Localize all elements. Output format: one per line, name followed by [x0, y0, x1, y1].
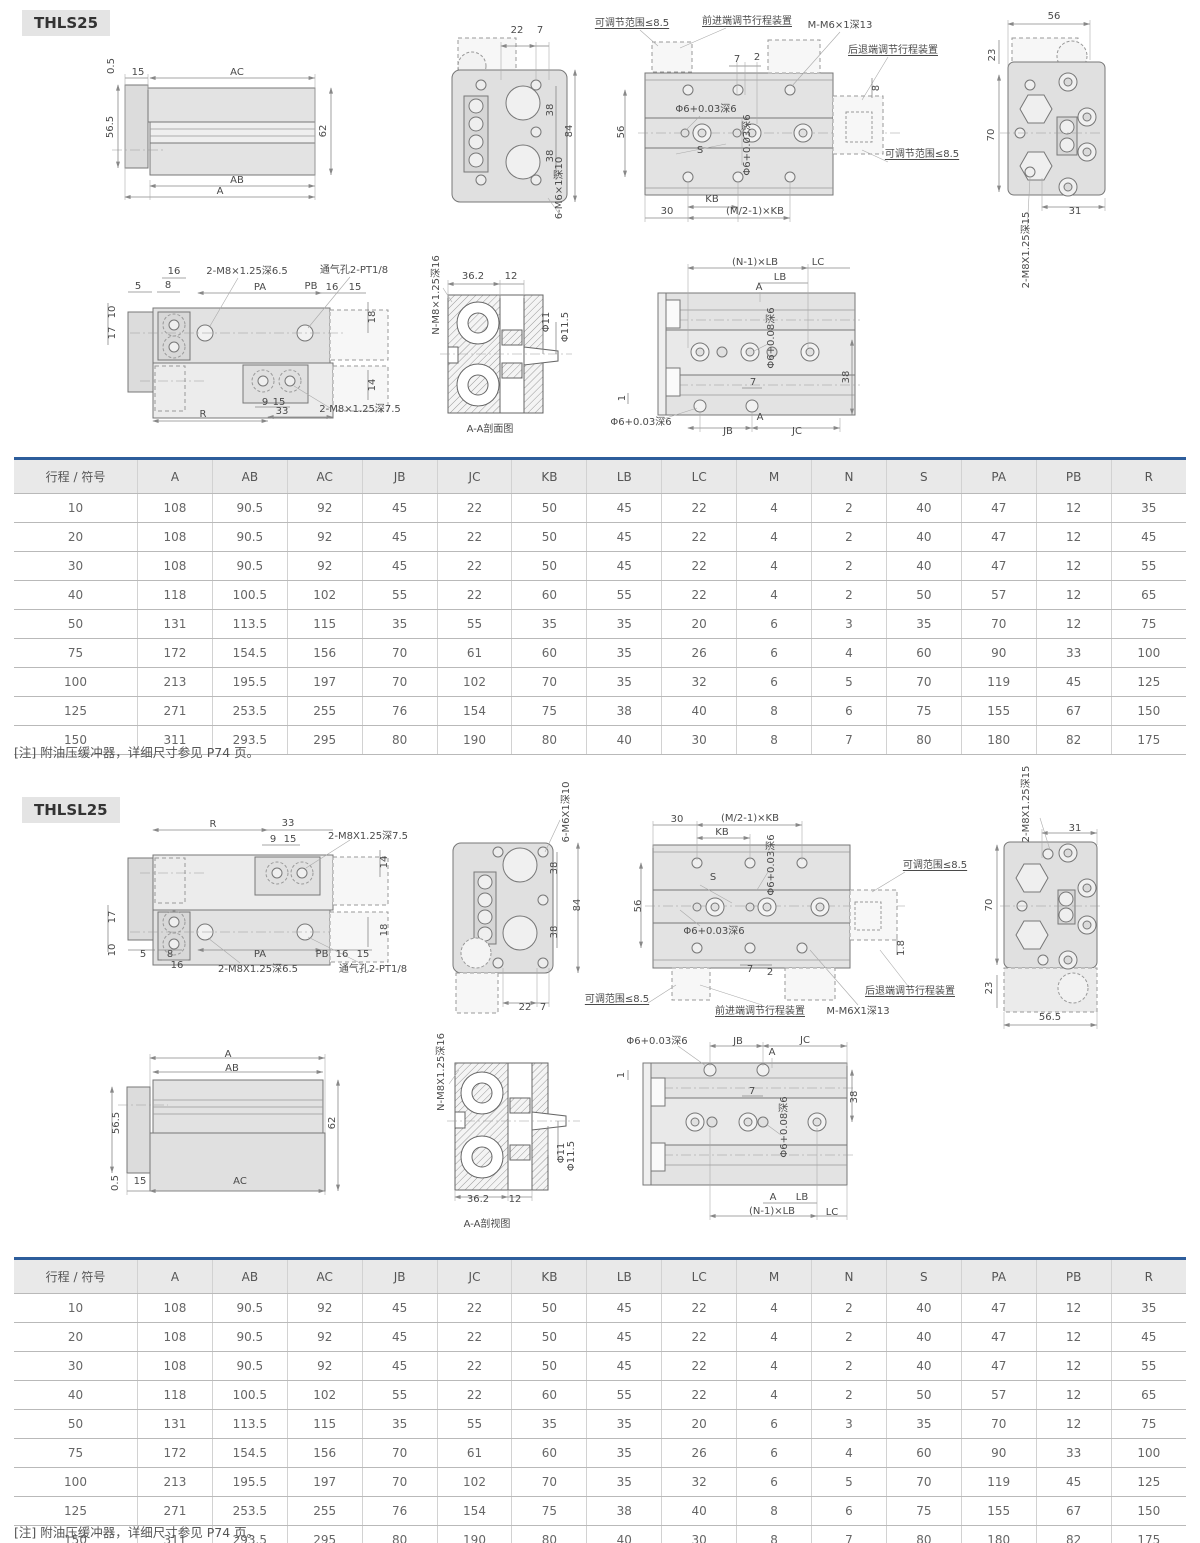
section2-note: [注] 附油压缓冲器，详细尺寸参见 P74 页。	[14, 1522, 259, 1541]
table-cell: 125	[1111, 668, 1186, 697]
table-cell: 76	[362, 1497, 437, 1526]
table-cell: 22	[662, 1294, 737, 1323]
table-cell: 40	[886, 1323, 961, 1352]
table-cell: 45	[362, 1294, 437, 1323]
table-cell: 40	[14, 1381, 138, 1410]
column-header: JC	[437, 1259, 512, 1294]
table-cell: 35	[1111, 494, 1186, 523]
column-header: R	[1111, 459, 1186, 494]
table-cell: 22	[437, 1323, 512, 1352]
table-cell: 45	[587, 1323, 662, 1352]
table-cell: 4	[737, 1381, 812, 1410]
table-cell: 100	[14, 1468, 138, 1497]
table-cell: 100	[14, 668, 138, 697]
column-header: AC	[287, 1259, 362, 1294]
table-cell: 35	[512, 1410, 587, 1439]
table-cell: 70	[362, 1468, 437, 1497]
table-cell: 195.5	[212, 1468, 287, 1497]
table-cell: 35	[512, 610, 587, 639]
column-header: S	[886, 1259, 961, 1294]
table-cell: 197	[287, 668, 362, 697]
table-cell: 45	[362, 552, 437, 581]
table-cell: 61	[437, 1439, 512, 1468]
table-cell: 2	[812, 1381, 887, 1410]
table-cell: 3	[812, 1410, 887, 1439]
table-row: 40118100.510255226055224250571265	[14, 1381, 1186, 1410]
table-cell: 50	[14, 610, 138, 639]
table-cell: 55	[1111, 552, 1186, 581]
table-cell: 90	[961, 1439, 1036, 1468]
table-cell: 30	[662, 726, 737, 755]
table-cell: 8	[737, 726, 812, 755]
table-cell: 92	[287, 552, 362, 581]
table-cell: 175	[1111, 1526, 1186, 1543]
column-header: KB	[512, 1259, 587, 1294]
table-cell: 60	[512, 1381, 587, 1410]
table-cell: 32	[662, 1468, 737, 1497]
table-cell: 75	[14, 1439, 138, 1468]
table-row: 1010890.59245225045224240471235	[14, 1294, 1186, 1323]
table-cell: 102	[287, 1381, 362, 1410]
table-cell: 154.5	[212, 1439, 287, 1468]
table-cell: 50	[14, 1410, 138, 1439]
table-cell: 80	[886, 1526, 961, 1543]
table-cell: 108	[138, 494, 213, 523]
table-row: 100213195.519770102703532657011945125	[14, 668, 1186, 697]
table-cell: 100	[1111, 1439, 1186, 1468]
table-cell: 10	[14, 1294, 138, 1323]
table-cell: 154	[437, 697, 512, 726]
table-cell: 80	[512, 726, 587, 755]
table-cell: 47	[961, 1323, 1036, 1352]
table-cell: 12	[1036, 581, 1111, 610]
table-cell: 6	[812, 1497, 887, 1526]
table-cell: 32	[662, 668, 737, 697]
table-cell: 172	[138, 639, 213, 668]
table-cell: 57	[961, 581, 1036, 610]
table-cell: 8	[737, 1497, 812, 1526]
table-cell: 40	[662, 1497, 737, 1526]
column-header: M	[737, 1259, 812, 1294]
table-cell: 295	[287, 726, 362, 755]
section1-technical-drawing	[0, 0, 1200, 458]
table-cell: 60	[512, 639, 587, 668]
table-cell: 150	[1111, 697, 1186, 726]
table-cell: 26	[662, 1439, 737, 1468]
table-cell: 40	[886, 494, 961, 523]
table-cell: 35	[587, 1439, 662, 1468]
table-cell: 2	[812, 1323, 887, 1352]
table-cell: 70	[886, 1468, 961, 1497]
table-cell: 190	[437, 1526, 512, 1543]
table-cell: 150	[1111, 1497, 1186, 1526]
table-cell: 40	[886, 523, 961, 552]
table-cell: 90.5	[212, 552, 287, 581]
table-cell: 8	[737, 697, 812, 726]
table-cell: 75	[886, 1497, 961, 1526]
table-cell: 172	[138, 1439, 213, 1468]
section2-technical-drawing	[0, 795, 1200, 1260]
table-cell: 22	[437, 523, 512, 552]
table-cell: 3	[812, 610, 887, 639]
table-cell: 213	[138, 1468, 213, 1497]
table-cell: 50	[886, 581, 961, 610]
table-cell: 20	[14, 523, 138, 552]
table-cell: 35	[587, 668, 662, 697]
table-cell: 40	[14, 581, 138, 610]
table-cell: 131	[138, 610, 213, 639]
table-cell: 156	[287, 1439, 362, 1468]
table-cell: 22	[662, 1381, 737, 1410]
table-cell: 253.5	[212, 697, 287, 726]
table-cell: 80	[886, 726, 961, 755]
table-cell: 22	[662, 523, 737, 552]
table-cell: 55	[587, 581, 662, 610]
table-cell: 45	[362, 494, 437, 523]
table-cell: 154.5	[212, 639, 287, 668]
table-cell: 22	[662, 552, 737, 581]
table-cell: 50	[512, 494, 587, 523]
table-cell: 113.5	[212, 610, 287, 639]
table-row: 50131113.511535553535206335701275	[14, 610, 1186, 639]
table-cell: 115	[287, 1410, 362, 1439]
table-cell: 60	[886, 639, 961, 668]
table-row: 3010890.59245225045224240471255	[14, 1352, 1186, 1381]
table-cell: 33	[1036, 1439, 1111, 1468]
table-cell: 70	[961, 1410, 1036, 1439]
table-cell: 40	[886, 1352, 961, 1381]
table-cell: 6	[737, 668, 812, 697]
table-header: 行程 / 符号AABACJBJCKBLBLCMNSPAPBR	[14, 459, 1186, 494]
table-cell: 45	[362, 1323, 437, 1352]
table-cell: 55	[437, 610, 512, 639]
table-cell: 108	[138, 523, 213, 552]
table-cell: 108	[138, 552, 213, 581]
table-cell: 55	[362, 1381, 437, 1410]
column-header: 行程 / 符号	[14, 459, 138, 494]
column-header: LB	[587, 459, 662, 494]
table-cell: 45	[1036, 668, 1111, 697]
table-cell: 6	[737, 1468, 812, 1497]
table-cell: 70	[362, 668, 437, 697]
table-cell: 20	[662, 1410, 737, 1439]
table-cell: 22	[437, 1381, 512, 1410]
table-cell: 45	[587, 552, 662, 581]
table-row: 2010890.59245225045224240471245	[14, 523, 1186, 552]
table-row: 2010890.59245225045224240471245	[14, 1323, 1186, 1352]
table-cell: 35	[587, 610, 662, 639]
table-cell: 82	[1036, 1526, 1111, 1543]
table-cell: 92	[287, 1323, 362, 1352]
table-cell: 115	[287, 610, 362, 639]
table-cell: 12	[1036, 1294, 1111, 1323]
table-cell: 5	[812, 668, 887, 697]
table-row: 40118100.510255226055224250571265	[14, 581, 1186, 610]
table-cell: 213	[138, 668, 213, 697]
table-cell: 45	[1111, 523, 1186, 552]
table-cell: 12	[1036, 494, 1111, 523]
table-cell: 45	[587, 494, 662, 523]
column-header: AB	[212, 459, 287, 494]
table-cell: 45	[1111, 1323, 1186, 1352]
column-header: JC	[437, 459, 512, 494]
table-cell: 75	[1111, 610, 1186, 639]
table-cell: 47	[961, 1352, 1036, 1381]
table-cell: 12	[1036, 1323, 1111, 1352]
table-cell: 90.5	[212, 1352, 287, 1381]
table-cell: 255	[287, 697, 362, 726]
table-cell: 45	[1036, 1468, 1111, 1497]
table-cell: 102	[287, 581, 362, 610]
table-row: 125271253.525576154753840867515567150	[14, 697, 1186, 726]
table-cell: 75	[886, 697, 961, 726]
table-cell: 35	[886, 1410, 961, 1439]
table-cell: 60	[886, 1439, 961, 1468]
table-cell: 4	[812, 1439, 887, 1468]
table-cell: 12	[1036, 1381, 1111, 1410]
table-cell: 82	[1036, 726, 1111, 755]
table-cell: 4	[737, 581, 812, 610]
table-cell: 100.5	[212, 1381, 287, 1410]
table-row: 50131113.511535553535206335701275	[14, 1410, 1186, 1439]
table-cell: 75	[512, 1497, 587, 1526]
column-header: PB	[1036, 1259, 1111, 1294]
table-cell: 70	[512, 668, 587, 697]
table-cell: 20	[14, 1323, 138, 1352]
table-cell: 38	[587, 1497, 662, 1526]
table-cell: 12	[1036, 552, 1111, 581]
column-header: N	[812, 459, 887, 494]
column-header: AB	[212, 1259, 287, 1294]
column-header: AC	[287, 459, 362, 494]
table-cell: 75	[14, 639, 138, 668]
table-cell: 2	[812, 523, 887, 552]
table-cell: 108	[138, 1294, 213, 1323]
table-cell: 22	[662, 1352, 737, 1381]
table-cell: 90.5	[212, 523, 287, 552]
table-cell: 6	[812, 697, 887, 726]
dimension-table: 行程 / 符号AABACJBJCKBLBLCMNSPAPBR 1010890.5…	[14, 1257, 1186, 1543]
table-cell: 40	[587, 1526, 662, 1543]
table-cell: 92	[287, 523, 362, 552]
table-cell: 180	[961, 726, 1036, 755]
table-cell: 100.5	[212, 581, 287, 610]
table-cell: 154	[437, 1497, 512, 1526]
table-cell: 125	[1111, 1468, 1186, 1497]
table-cell: 40	[886, 552, 961, 581]
table-cell: 4	[737, 1323, 812, 1352]
table-cell: 5	[812, 1468, 887, 1497]
table-cell: 180	[961, 1526, 1036, 1543]
table-cell: 47	[961, 552, 1036, 581]
table-cell: 65	[1111, 581, 1186, 610]
table-cell: 55	[1111, 1352, 1186, 1381]
table-cell: 90	[961, 639, 1036, 668]
table-cell: 38	[587, 697, 662, 726]
table-cell: 60	[512, 581, 587, 610]
table-cell: 4	[737, 1352, 812, 1381]
column-header: LB	[587, 1259, 662, 1294]
table-cell: 2	[812, 1352, 887, 1381]
table-cell: 2	[812, 552, 887, 581]
column-header: M	[737, 459, 812, 494]
table-cell: 47	[961, 1294, 1036, 1323]
table-cell: 35	[362, 610, 437, 639]
column-header: PA	[961, 459, 1036, 494]
dimension-table: 行程 / 符号AABACJBJCKBLBLCMNSPAPBR 1010890.5…	[14, 457, 1186, 755]
table-cell: 175	[1111, 726, 1186, 755]
table-body: 1010890.592452250452242404712352010890.5…	[14, 1294, 1186, 1543]
table-cell: 6	[737, 1439, 812, 1468]
table-cell: 4	[737, 552, 812, 581]
table-cell: 197	[287, 1468, 362, 1497]
section1-note: [注] 附油压缓冲器，详细尺寸参见 P74 页。	[14, 742, 259, 761]
column-header: LC	[662, 459, 737, 494]
table-cell: 55	[587, 1381, 662, 1410]
table-cell: 50	[512, 1352, 587, 1381]
table-cell: 118	[138, 1381, 213, 1410]
table-row: 75172154.5156706160352664609033100	[14, 639, 1186, 668]
table-cell: 118	[138, 581, 213, 610]
table-cell: 80	[362, 1526, 437, 1543]
table-cell: 35	[587, 1468, 662, 1497]
table-cell: 8	[737, 1526, 812, 1543]
table-cell: 4	[737, 494, 812, 523]
table-cell: 119	[961, 1468, 1036, 1497]
column-header: JB	[362, 1259, 437, 1294]
column-header: LC	[662, 1259, 737, 1294]
table-cell: 50	[512, 1294, 587, 1323]
table-cell: 125	[14, 697, 138, 726]
table-header: 行程 / 符号AABACJBJCKBLBLCMNSPAPBR	[14, 1259, 1186, 1294]
table-cell: 155	[961, 1497, 1036, 1526]
table-cell: 50	[512, 1323, 587, 1352]
table-cell: 61	[437, 639, 512, 668]
table-cell: 12	[1036, 523, 1111, 552]
table-cell: 22	[662, 494, 737, 523]
column-header: PA	[961, 1259, 1036, 1294]
table-cell: 33	[1036, 639, 1111, 668]
table-cell: 22	[662, 1323, 737, 1352]
table-cell: 70	[512, 1468, 587, 1497]
table-cell: 35	[362, 1410, 437, 1439]
table-cell: 2	[812, 494, 887, 523]
table-cell: 22	[662, 581, 737, 610]
table-cell: 50	[512, 552, 587, 581]
table-cell: 70	[961, 610, 1036, 639]
datasheet-page: THLS25	[0, 0, 1200, 1543]
table-cell: 80	[512, 1526, 587, 1543]
table-cell: 26	[662, 639, 737, 668]
table-cell: 65	[1111, 1381, 1186, 1410]
table-cell: 6	[737, 639, 812, 668]
table-cell: 30	[14, 552, 138, 581]
table-row: 75172154.5156706160352664609033100	[14, 1439, 1186, 1468]
table-cell: 271	[138, 697, 213, 726]
table-cell: 12	[1036, 1410, 1111, 1439]
table-cell: 35	[587, 1410, 662, 1439]
table-cell: 255	[287, 1497, 362, 1526]
table-cell: 50	[512, 523, 587, 552]
column-header: A	[138, 1259, 213, 1294]
table-cell: 57	[961, 1381, 1036, 1410]
table-cell: 92	[287, 1294, 362, 1323]
table-cell: 90.5	[212, 494, 287, 523]
table-cell: 102	[437, 668, 512, 697]
table-cell: 90.5	[212, 1323, 287, 1352]
table-cell: 92	[287, 1352, 362, 1381]
table-cell: 70	[886, 668, 961, 697]
table-cell: 2	[812, 581, 887, 610]
table-cell: 295	[287, 1526, 362, 1543]
table-cell: 195.5	[212, 668, 287, 697]
table-cell: 67	[1036, 1497, 1111, 1526]
table-cell: 100	[1111, 639, 1186, 668]
table-cell: 22	[437, 581, 512, 610]
table-cell: 45	[587, 1294, 662, 1323]
table-cell: 92	[287, 494, 362, 523]
table-cell: 47	[961, 523, 1036, 552]
table-cell: 75	[1111, 1410, 1186, 1439]
table-cell: 131	[138, 1410, 213, 1439]
column-header: N	[812, 1259, 887, 1294]
table-cell: 45	[587, 523, 662, 552]
table-body: 1010890.592452250452242404712352010890.5…	[14, 494, 1186, 755]
table-cell: 12	[1036, 1352, 1111, 1381]
table-cell: 12	[1036, 610, 1111, 639]
table-cell: 35	[1111, 1294, 1186, 1323]
table-cell: 155	[961, 697, 1036, 726]
table-cell: 4	[737, 523, 812, 552]
table-cell: 190	[437, 726, 512, 755]
column-header: PB	[1036, 459, 1111, 494]
table-row: 1010890.59245225045224240471235	[14, 494, 1186, 523]
column-header: A	[138, 459, 213, 494]
table-cell: 4	[812, 639, 887, 668]
column-header: S	[886, 459, 961, 494]
table-cell: 47	[961, 494, 1036, 523]
table-cell: 102	[437, 1468, 512, 1497]
table-cell: 50	[886, 1381, 961, 1410]
table-cell: 6	[737, 1410, 812, 1439]
table-cell: 67	[1036, 697, 1111, 726]
table-cell: 45	[587, 1352, 662, 1381]
table-cell: 35	[886, 610, 961, 639]
table-cell: 70	[362, 639, 437, 668]
table-cell: 22	[437, 552, 512, 581]
table-cell: 30	[662, 1526, 737, 1543]
table-cell: 40	[587, 726, 662, 755]
table-cell: 7	[812, 726, 887, 755]
column-header: R	[1111, 1259, 1186, 1294]
table-cell: 20	[662, 610, 737, 639]
table-cell: 35	[587, 639, 662, 668]
table-cell: 40	[662, 697, 737, 726]
table-cell: 55	[362, 581, 437, 610]
table-cell: 22	[437, 1352, 512, 1381]
table-cell: 108	[138, 1352, 213, 1381]
table-cell: 70	[362, 1439, 437, 1468]
table-cell: 45	[362, 523, 437, 552]
table-cell: 45	[362, 1352, 437, 1381]
column-header: JB	[362, 459, 437, 494]
table-cell: 4	[737, 1294, 812, 1323]
table-cell: 7	[812, 1526, 887, 1543]
table-cell: 22	[437, 1294, 512, 1323]
table-cell: 76	[362, 697, 437, 726]
table-cell: 6	[737, 610, 812, 639]
table-cell: 30	[14, 1352, 138, 1381]
